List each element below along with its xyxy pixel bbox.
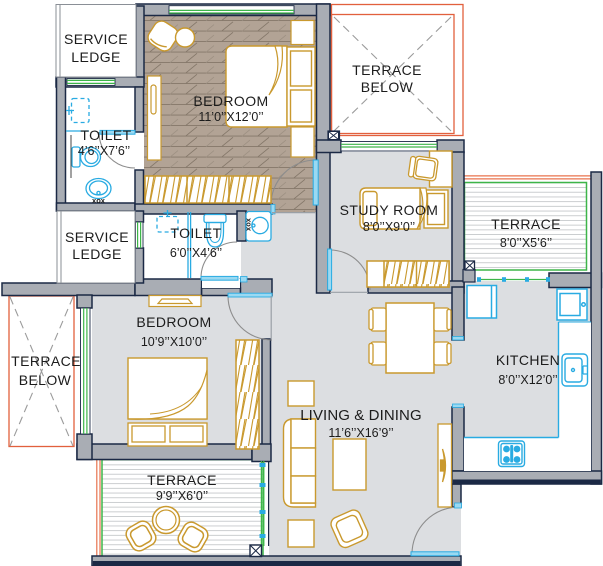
- svg-text:TOILET: TOILET: [80, 127, 131, 143]
- svg-text:8’0’’X5’6’’: 8’0’’X5’6’’: [500, 236, 552, 250]
- svg-text:xοx: xοx: [92, 196, 106, 205]
- svg-text:LEDGE: LEDGE: [71, 49, 120, 65]
- svg-text:TERRACE: TERRACE: [491, 216, 561, 232]
- svg-text:SERVICE: SERVICE: [64, 31, 128, 47]
- svg-text:SERVICE: SERVICE: [65, 229, 129, 245]
- svg-text:BELOW: BELOW: [361, 79, 414, 95]
- svg-text:8’0’’X9’0’’: 8’0’’X9’0’’: [363, 220, 415, 234]
- svg-text:BELOW: BELOW: [19, 372, 72, 388]
- svg-text:BEDROOM: BEDROOM: [136, 314, 211, 330]
- svg-text:11’6’’X16’9’’: 11’6’’X16’9’’: [328, 426, 393, 440]
- svg-text:6’0’’X4’6’’: 6’0’’X4’6’’: [170, 246, 222, 260]
- svg-text:TERRACE: TERRACE: [11, 353, 81, 369]
- svg-text:STUDY ROOM: STUDY ROOM: [340, 202, 439, 218]
- svg-text:xοx: xοx: [244, 217, 253, 231]
- svg-text:TOILET: TOILET: [170, 225, 221, 241]
- svg-text:11’0’’X12’0’’: 11’0’’X12’0’’: [198, 110, 263, 124]
- svg-text:10’9’’X10’0’’: 10’9’’X10’0’’: [141, 335, 207, 349]
- svg-text:8’0’’X12’0’’: 8’0’’X12’0’’: [498, 373, 557, 387]
- svg-text:4’6’’X7’6’’: 4’6’’X7’6’’: [78, 144, 130, 158]
- svg-text:TERRACE: TERRACE: [352, 62, 422, 78]
- svg-text:TERRACE: TERRACE: [147, 472, 217, 488]
- svg-text:BEDROOM: BEDROOM: [193, 93, 268, 109]
- svg-text:KITCHEN: KITCHEN: [496, 352, 560, 368]
- svg-text:LEDGE: LEDGE: [72, 246, 121, 262]
- svg-text:LIVING & DINING: LIVING & DINING: [300, 407, 422, 424]
- svg-text:9’9’’X6’0’’: 9’9’’X6’0’’: [156, 489, 208, 503]
